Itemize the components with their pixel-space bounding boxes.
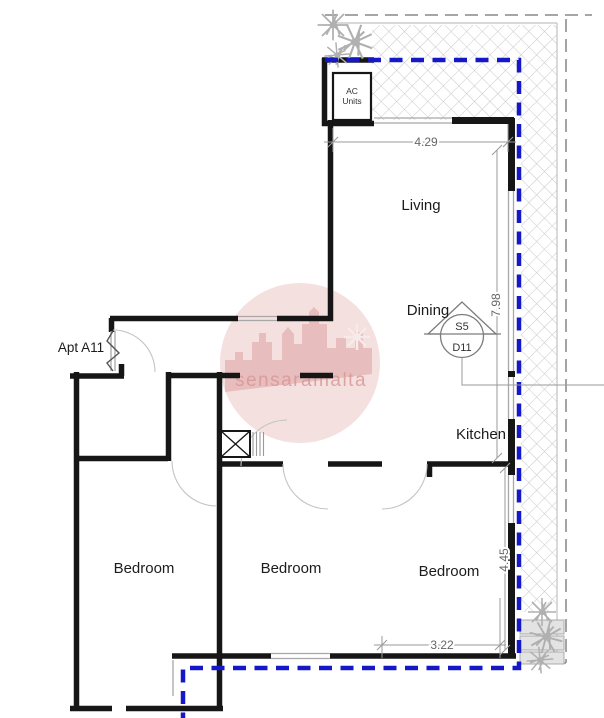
ac-units-label-2: Units (342, 96, 361, 106)
tag-label-bottom: D11 (452, 342, 471, 354)
room-label-living: Living (401, 197, 440, 214)
entrance-door-leaf-icon (107, 331, 119, 371)
dimension-label-bedroom-width: 3.22 (430, 638, 454, 652)
floor-plan-page: sensaramalta AC Units (0, 0, 604, 718)
terrace-hatch-top (372, 25, 557, 120)
dimension-label-bedroom-height: 4.45 (497, 548, 511, 572)
ac-units-label-1: AC (346, 86, 358, 96)
room-label-dining: Dining (407, 302, 450, 319)
apartment-label: Apt A11 (58, 340, 104, 355)
shaft-icon (221, 431, 264, 457)
terrace-hatch-right (521, 120, 557, 612)
dimension-label-right-height-upper: 7.98 (489, 293, 503, 317)
room-label-bedroom-right: Bedroom (419, 563, 480, 580)
dimension-label-living-width: 4.29 (414, 135, 438, 149)
ac-units-box: AC Units (333, 73, 371, 120)
room-label-bedroom-middle: Bedroom (261, 560, 322, 577)
room-label-kitchen: Kitchen (456, 426, 506, 443)
floor-plan: sensaramalta AC Units (0, 0, 604, 718)
room-label-bedroom-left: Bedroom (114, 560, 175, 577)
watermark: sensaramalta (220, 283, 380, 443)
tag-label-top: S5 (455, 321, 468, 333)
